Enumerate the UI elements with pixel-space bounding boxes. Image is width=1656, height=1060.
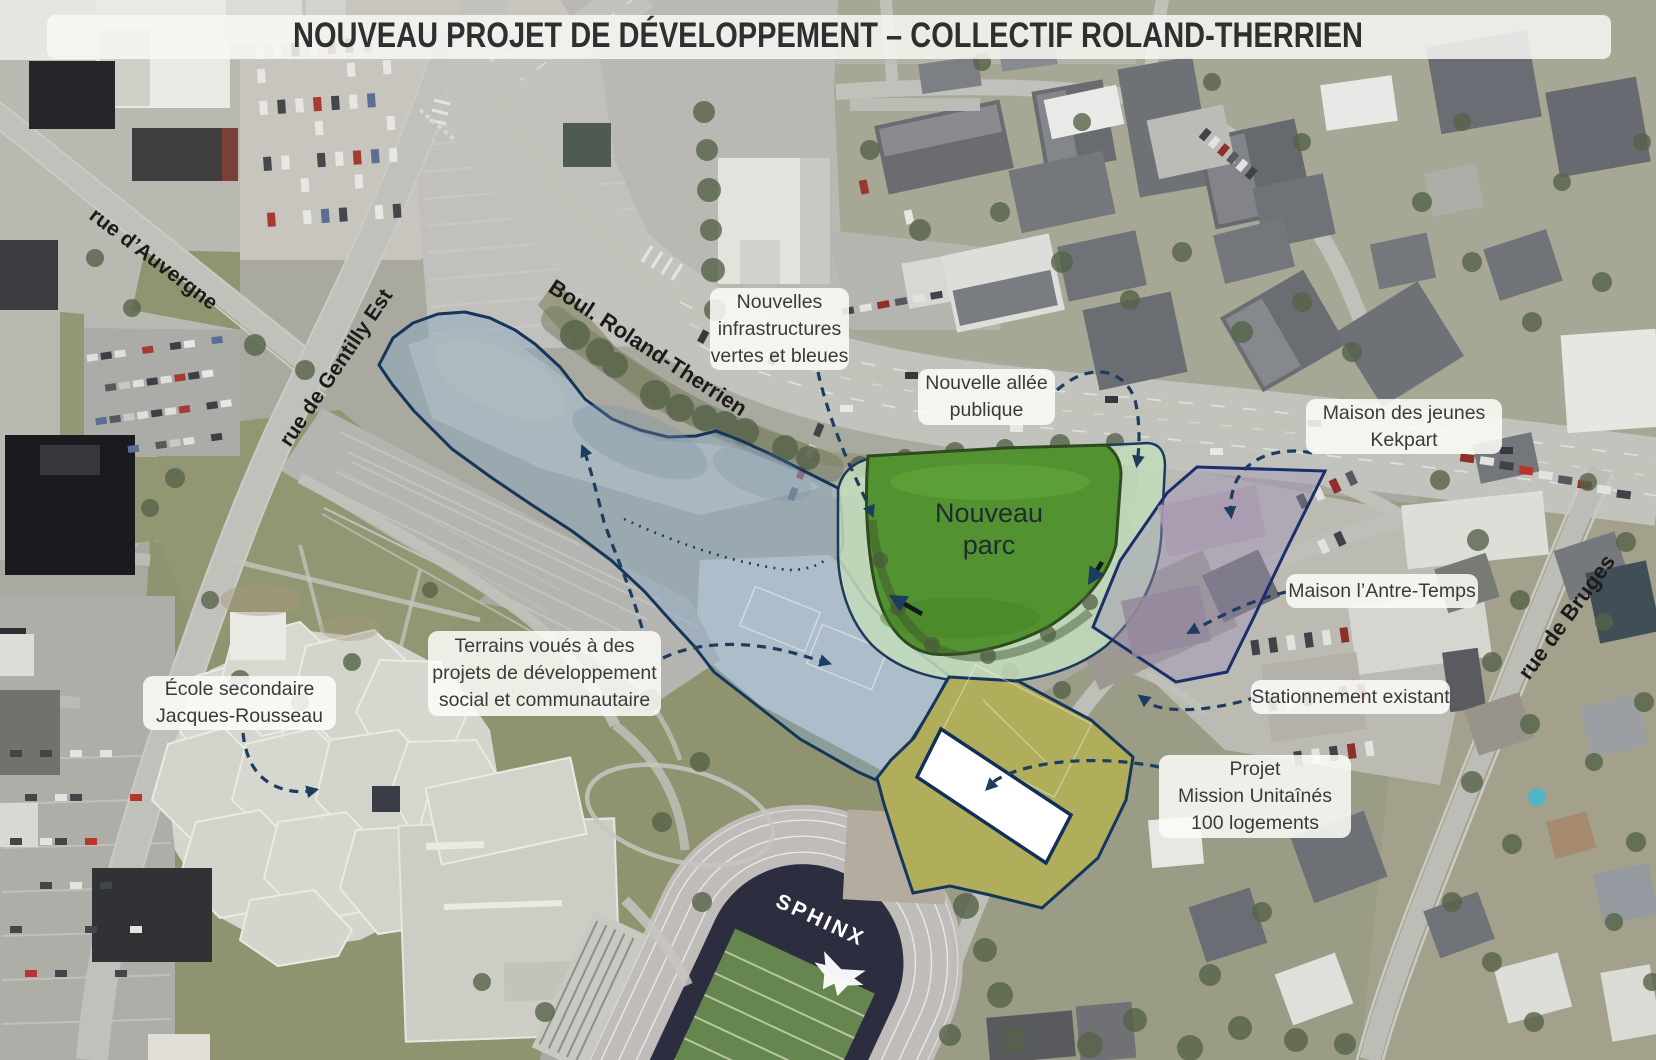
svg-text:NOUVEAU PROJET DE DÉVELOPPEMEN: NOUVEAU PROJET DE DÉVELOPPEMENT – COLLEC… [293, 15, 1363, 55]
svg-text:Nouveau: Nouveau [935, 498, 1043, 528]
svg-text:parc: parc [963, 530, 1016, 560]
